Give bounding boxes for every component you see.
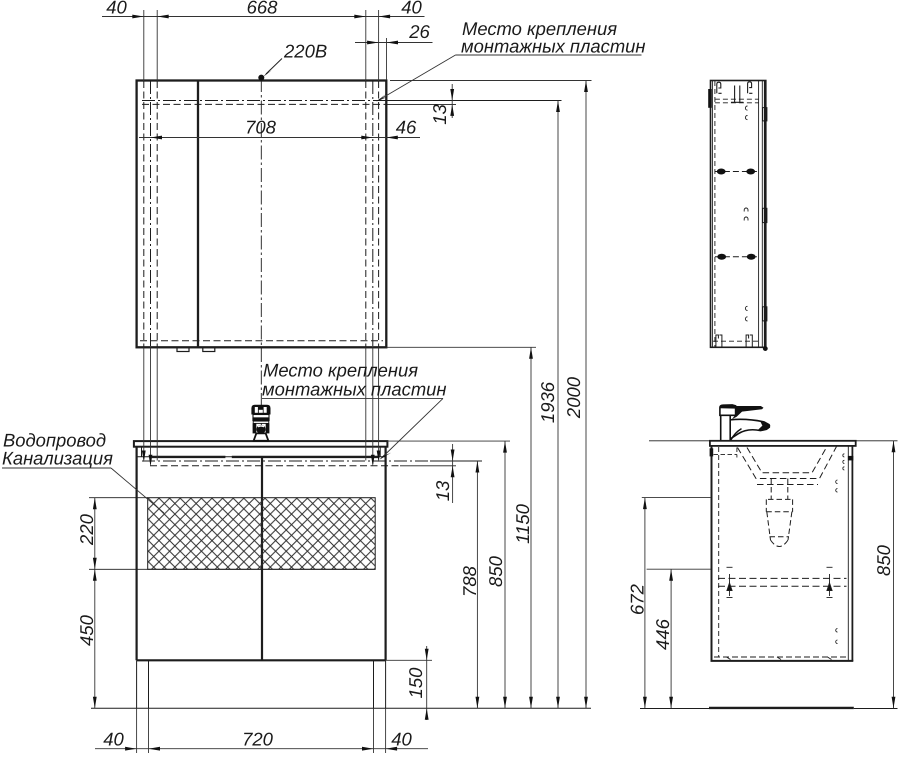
svg-text:Место крепления: Место крепления (263, 360, 418, 381)
svg-text:1936: 1936 (537, 381, 558, 423)
svg-text:монтажных пластин: монтажных пластин (461, 36, 646, 57)
svg-text:668: 668 (247, 0, 279, 18)
svg-text:150: 150 (405, 667, 426, 699)
svg-text:720: 720 (242, 729, 274, 750)
svg-text:13: 13 (429, 104, 450, 125)
svg-text:Канализация: Канализация (2, 448, 113, 469)
svg-text:708: 708 (245, 117, 277, 138)
svg-text:850: 850 (485, 555, 506, 587)
svg-text:220В: 220В (283, 41, 327, 62)
svg-text:220: 220 (76, 513, 97, 546)
svg-text:1150: 1150 (512, 503, 533, 543)
svg-text:40: 40 (401, 0, 422, 18)
svg-text:40: 40 (391, 729, 412, 750)
svg-text:40: 40 (106, 0, 127, 18)
svg-text:2000: 2000 (563, 376, 584, 419)
svg-text:13: 13 (432, 480, 453, 501)
svg-text:монтажных пластин: монтажных пластин (262, 379, 447, 400)
svg-text:850: 850 (873, 544, 894, 576)
svg-text:46: 46 (396, 117, 417, 138)
svg-text:672: 672 (627, 583, 648, 615)
svg-text:450: 450 (76, 614, 97, 646)
svg-text:788: 788 (459, 565, 480, 597)
svg-text:40: 40 (103, 729, 124, 750)
svg-text:446: 446 (652, 618, 673, 650)
svg-text:26: 26 (408, 21, 430, 42)
